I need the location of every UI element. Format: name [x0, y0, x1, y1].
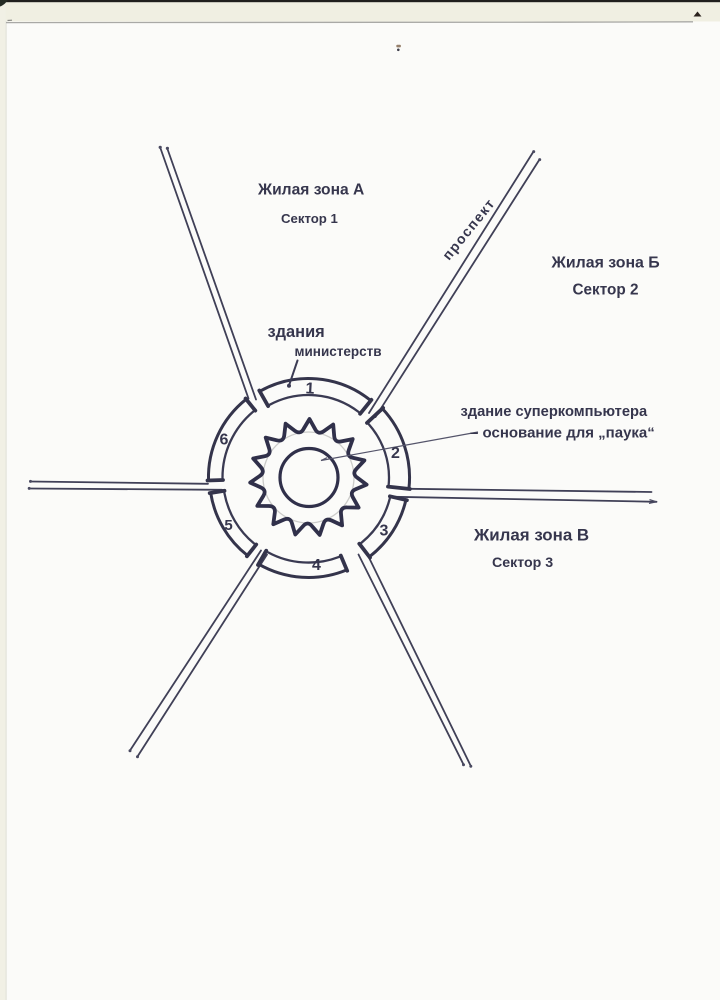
- svg-text:Сектор 2: Сектор 2: [573, 282, 639, 299]
- svg-text:Сектор 1: Сектор 1: [281, 211, 338, 226]
- svg-text:2: 2: [391, 445, 400, 462]
- svg-text:Сектор 3: Сектор 3: [492, 555, 553, 571]
- svg-text:здание суперкомпьютера: здание суперкомпьютера: [461, 404, 649, 420]
- svg-text:5: 5: [224, 517, 232, 534]
- svg-text:– основание для „паука“: – основание для „паука“: [470, 425, 655, 442]
- svg-text:Жилая зона В: Жилая зона В: [473, 526, 589, 545]
- svg-text:3: 3: [380, 523, 389, 540]
- svg-text:здания: здания: [268, 323, 325, 341]
- svg-text:министерств: министерств: [295, 344, 382, 359]
- svg-text:Жилая зона Б: Жилая зона Б: [551, 255, 660, 272]
- svg-text:1: 1: [305, 380, 315, 397]
- svg-text:Жилая зона А: Жилая зона А: [257, 182, 364, 199]
- svg-text:6: 6: [220, 432, 229, 449]
- svg-text:4: 4: [312, 557, 321, 574]
